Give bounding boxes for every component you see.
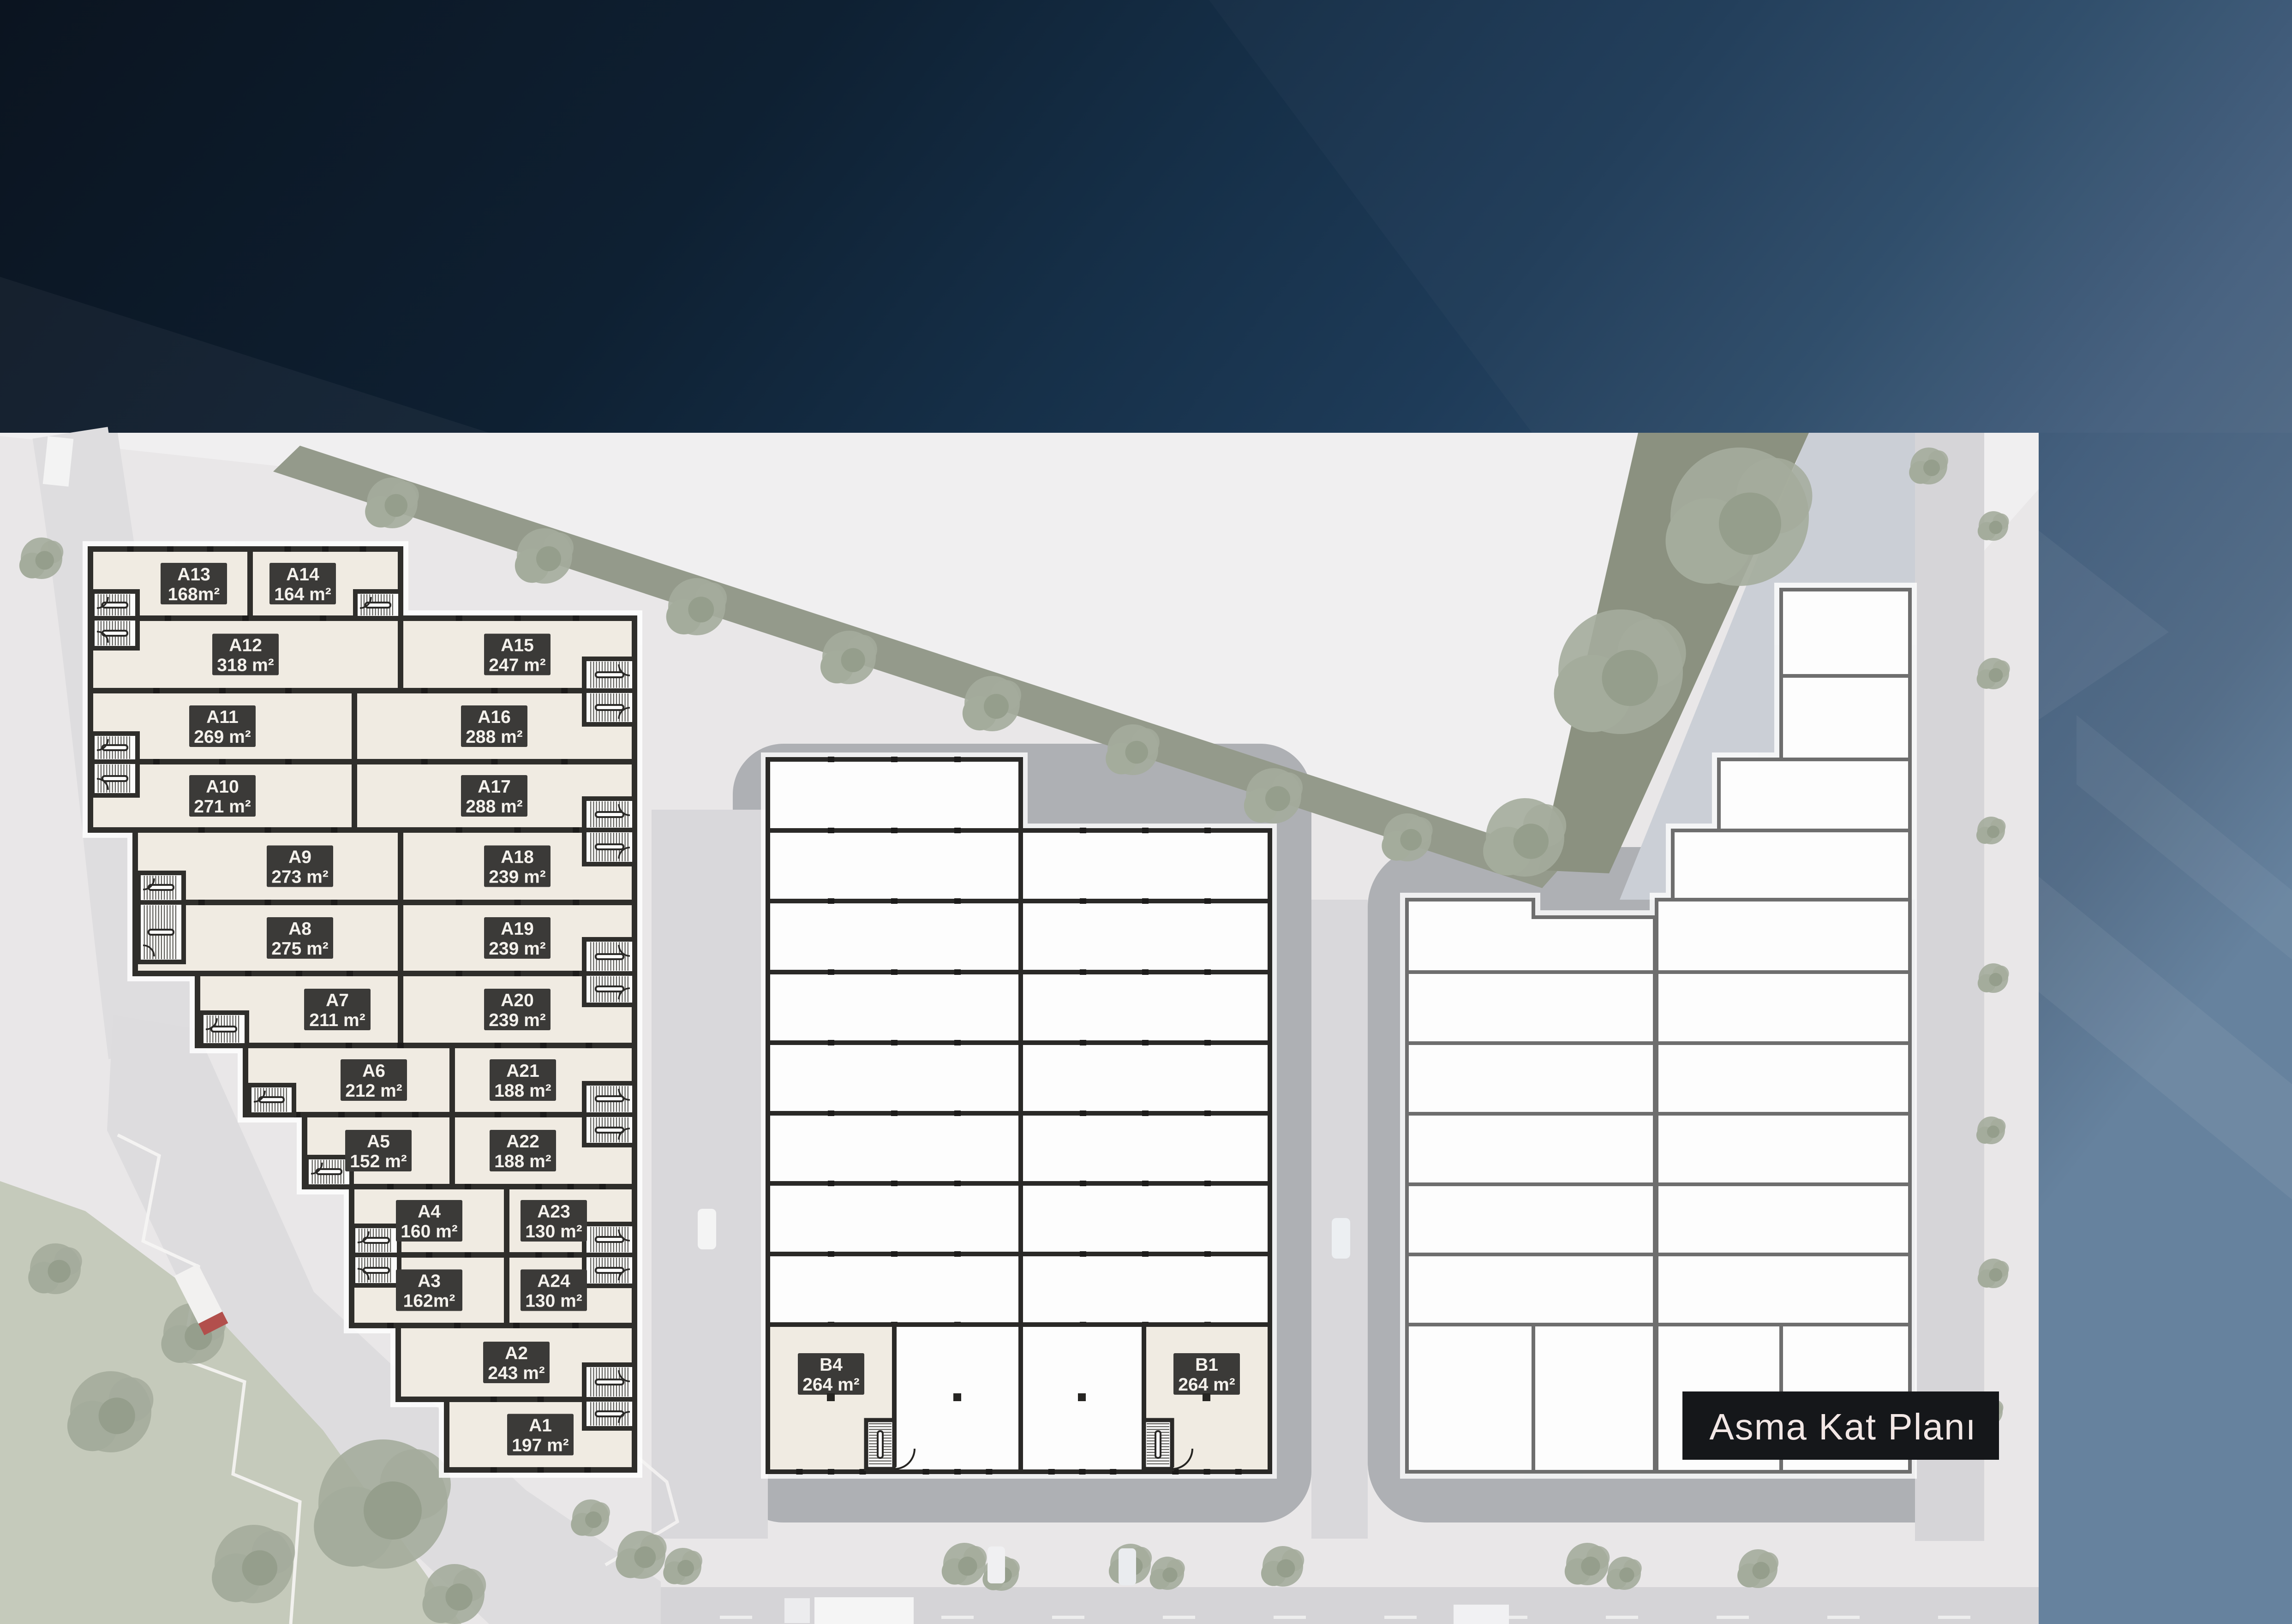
svg-text:168m²: 168m² [168, 585, 220, 604]
svg-text:A21: A21 [506, 1061, 539, 1081]
svg-text:A22: A22 [506, 1132, 539, 1152]
svg-text:A16: A16 [478, 707, 511, 727]
svg-text:275 m²: 275 m² [271, 939, 329, 959]
svg-text:A4: A4 [418, 1202, 441, 1222]
svg-text:A5: A5 [367, 1132, 390, 1152]
svg-text:130 m²: 130 m² [525, 1222, 582, 1242]
svg-text:271 m²: 271 m² [194, 797, 251, 817]
svg-text:A17: A17 [478, 777, 511, 797]
svg-text:A24: A24 [537, 1272, 570, 1291]
svg-text:197 m²: 197 m² [512, 1436, 569, 1456]
svg-text:243 m²: 243 m² [488, 1363, 545, 1383]
svg-text:A3: A3 [418, 1272, 441, 1291]
svg-text:269 m²: 269 m² [194, 727, 251, 747]
svg-text:188 m²: 188 m² [494, 1081, 551, 1101]
svg-text:264 m²: 264 m² [802, 1375, 860, 1395]
svg-text:A12: A12 [229, 636, 262, 656]
svg-text:239 m²: 239 m² [489, 1010, 546, 1030]
svg-text:A7: A7 [326, 991, 349, 1010]
svg-text:247 m²: 247 m² [489, 656, 546, 675]
svg-text:A1: A1 [529, 1416, 552, 1436]
svg-text:239 m²: 239 m² [489, 939, 546, 959]
svg-text:A11: A11 [206, 707, 238, 727]
svg-text:318 m²: 318 m² [217, 656, 274, 675]
svg-text:212 m²: 212 m² [345, 1081, 402, 1101]
svg-text:A9: A9 [288, 848, 311, 867]
svg-text:162m²: 162m² [403, 1291, 455, 1311]
svg-text:A20: A20 [501, 991, 534, 1010]
svg-text:B4: B4 [820, 1355, 843, 1375]
svg-text:B1: B1 [1195, 1355, 1218, 1375]
svg-text:288 m²: 288 m² [466, 797, 523, 817]
svg-text:152 m²: 152 m² [350, 1152, 407, 1171]
svg-text:A8: A8 [288, 919, 311, 939]
svg-text:A15: A15 [501, 636, 534, 656]
svg-text:A19: A19 [501, 919, 534, 939]
svg-text:164 m²: 164 m² [274, 585, 331, 604]
svg-text:A10: A10 [206, 777, 239, 797]
svg-text:160 m²: 160 m² [401, 1222, 458, 1242]
svg-text:130 m²: 130 m² [525, 1291, 582, 1311]
svg-text:A23: A23 [537, 1202, 570, 1222]
svg-text:A13: A13 [177, 565, 210, 585]
svg-text:A2: A2 [505, 1343, 528, 1363]
svg-text:A18: A18 [501, 848, 534, 867]
svg-text:239 m²: 239 m² [489, 867, 546, 887]
svg-text:Asma Kat Planı: Asma Kat Planı [1709, 1406, 1976, 1447]
svg-text:288 m²: 288 m² [466, 727, 523, 747]
svg-text:211 m²: 211 m² [309, 1010, 365, 1030]
svg-text:273 m²: 273 m² [271, 867, 329, 887]
svg-text:A6: A6 [362, 1061, 385, 1081]
svg-text:A14: A14 [286, 565, 319, 585]
svg-text:264 m²: 264 m² [1178, 1375, 1235, 1395]
svg-text:188 m²: 188 m² [494, 1152, 551, 1171]
